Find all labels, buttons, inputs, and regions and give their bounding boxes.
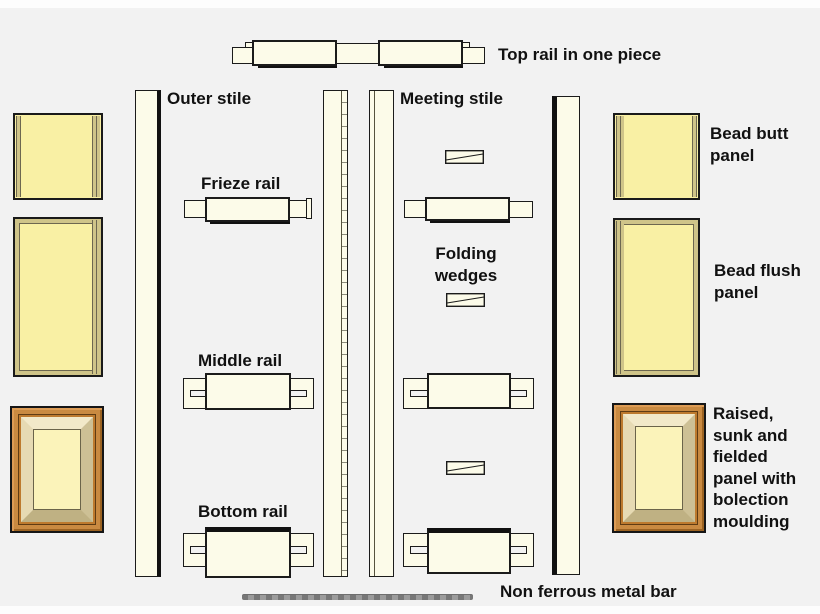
bottom-rail-label: Bottom rail xyxy=(198,501,288,523)
middle-rail-centre-notch-right xyxy=(509,390,527,397)
frieze-rail-centre-tenon-left xyxy=(404,200,427,218)
metal-bar-label: Non ferrous metal bar xyxy=(500,581,677,603)
top-rail-shoulder-right xyxy=(378,40,463,66)
flush-bead-ring xyxy=(15,219,101,375)
bolection-moulding-ring xyxy=(18,414,96,525)
bead-strip-multi xyxy=(92,116,100,197)
folding-wedges-label: Folding wedges xyxy=(420,243,512,286)
bead-butt-panel-label: Bead butt panel xyxy=(710,123,788,166)
bead-strip xyxy=(16,116,21,197)
bottom-rail-centre-body xyxy=(427,528,511,574)
meeting-stile-bead xyxy=(370,91,375,576)
top-rail-middle-section xyxy=(336,43,380,64)
top-rail-shoulder-left xyxy=(252,40,337,66)
frieze-rail-centre-body xyxy=(425,197,510,221)
bead-flush-panel-right xyxy=(613,218,700,377)
top-rail-tenon-right xyxy=(462,47,485,64)
top-margin xyxy=(0,0,820,8)
top-rail-label: Top rail in one piece xyxy=(498,44,661,66)
bead-strip-multi xyxy=(616,116,624,197)
outer-stile xyxy=(135,90,161,577)
door-components-diagram: Top rail in one piece Outer stile Meetin… xyxy=(0,0,820,614)
frieze-rail-centre-tenon-right xyxy=(508,201,533,218)
top-rail-tenon-left xyxy=(232,47,254,64)
raised-panel-label: Raised, sunk and fielded panel with bole… xyxy=(713,403,796,532)
bead-flush-panel-label: Bead flush panel xyxy=(714,260,801,303)
non-ferrous-metal-bar xyxy=(242,594,473,600)
folding-wedge-middle xyxy=(446,293,485,307)
bottom-rail-centre-notch-left xyxy=(410,546,428,554)
folding-wedge-top xyxy=(445,150,484,164)
raised-panel-right xyxy=(612,403,706,533)
meeting-stile-groove xyxy=(341,91,347,576)
frieze-rail-label: Frieze rail xyxy=(201,173,280,195)
fielded-bevel xyxy=(21,417,93,522)
inner-stile xyxy=(552,96,580,575)
middle-rail-label: Middle rail xyxy=(198,350,282,372)
middle-rail-body xyxy=(205,373,291,410)
outer-stile-label: Outer stile xyxy=(167,88,251,110)
meeting-stile-right xyxy=(369,90,394,577)
bottom-rail-notch-right xyxy=(289,546,307,554)
fielded-bevel xyxy=(623,414,695,522)
frieze-rail-body xyxy=(205,197,290,222)
middle-rail-centre-body xyxy=(427,373,511,409)
bottom-rail-body xyxy=(205,527,291,578)
meeting-stile-left xyxy=(323,90,348,577)
bottom-margin xyxy=(0,606,820,614)
middle-rail-notch-right xyxy=(289,390,307,397)
frieze-rail-tenon-left xyxy=(184,200,207,218)
bottom-rail-centre-notch-right xyxy=(509,546,527,554)
raised-panel-left xyxy=(10,406,104,533)
bead-butt-panel-right xyxy=(613,113,700,200)
middle-rail-centre-notch-left xyxy=(410,390,428,397)
frieze-rail-tenon-right xyxy=(288,200,308,218)
bead-flush-panel-left xyxy=(13,217,103,377)
bolection-moulding-ring xyxy=(620,411,698,525)
folding-wedge-bottom xyxy=(446,461,485,475)
bead-strip-multi xyxy=(92,220,100,374)
bead-butt-panel-left xyxy=(13,113,103,200)
flush-bead-ring xyxy=(615,220,698,375)
frieze-rail-tenon-end xyxy=(306,198,312,219)
meeting-stile-label: Meeting stile xyxy=(400,88,503,110)
bead-strip xyxy=(692,116,697,197)
bead-strip-multi xyxy=(616,221,624,374)
